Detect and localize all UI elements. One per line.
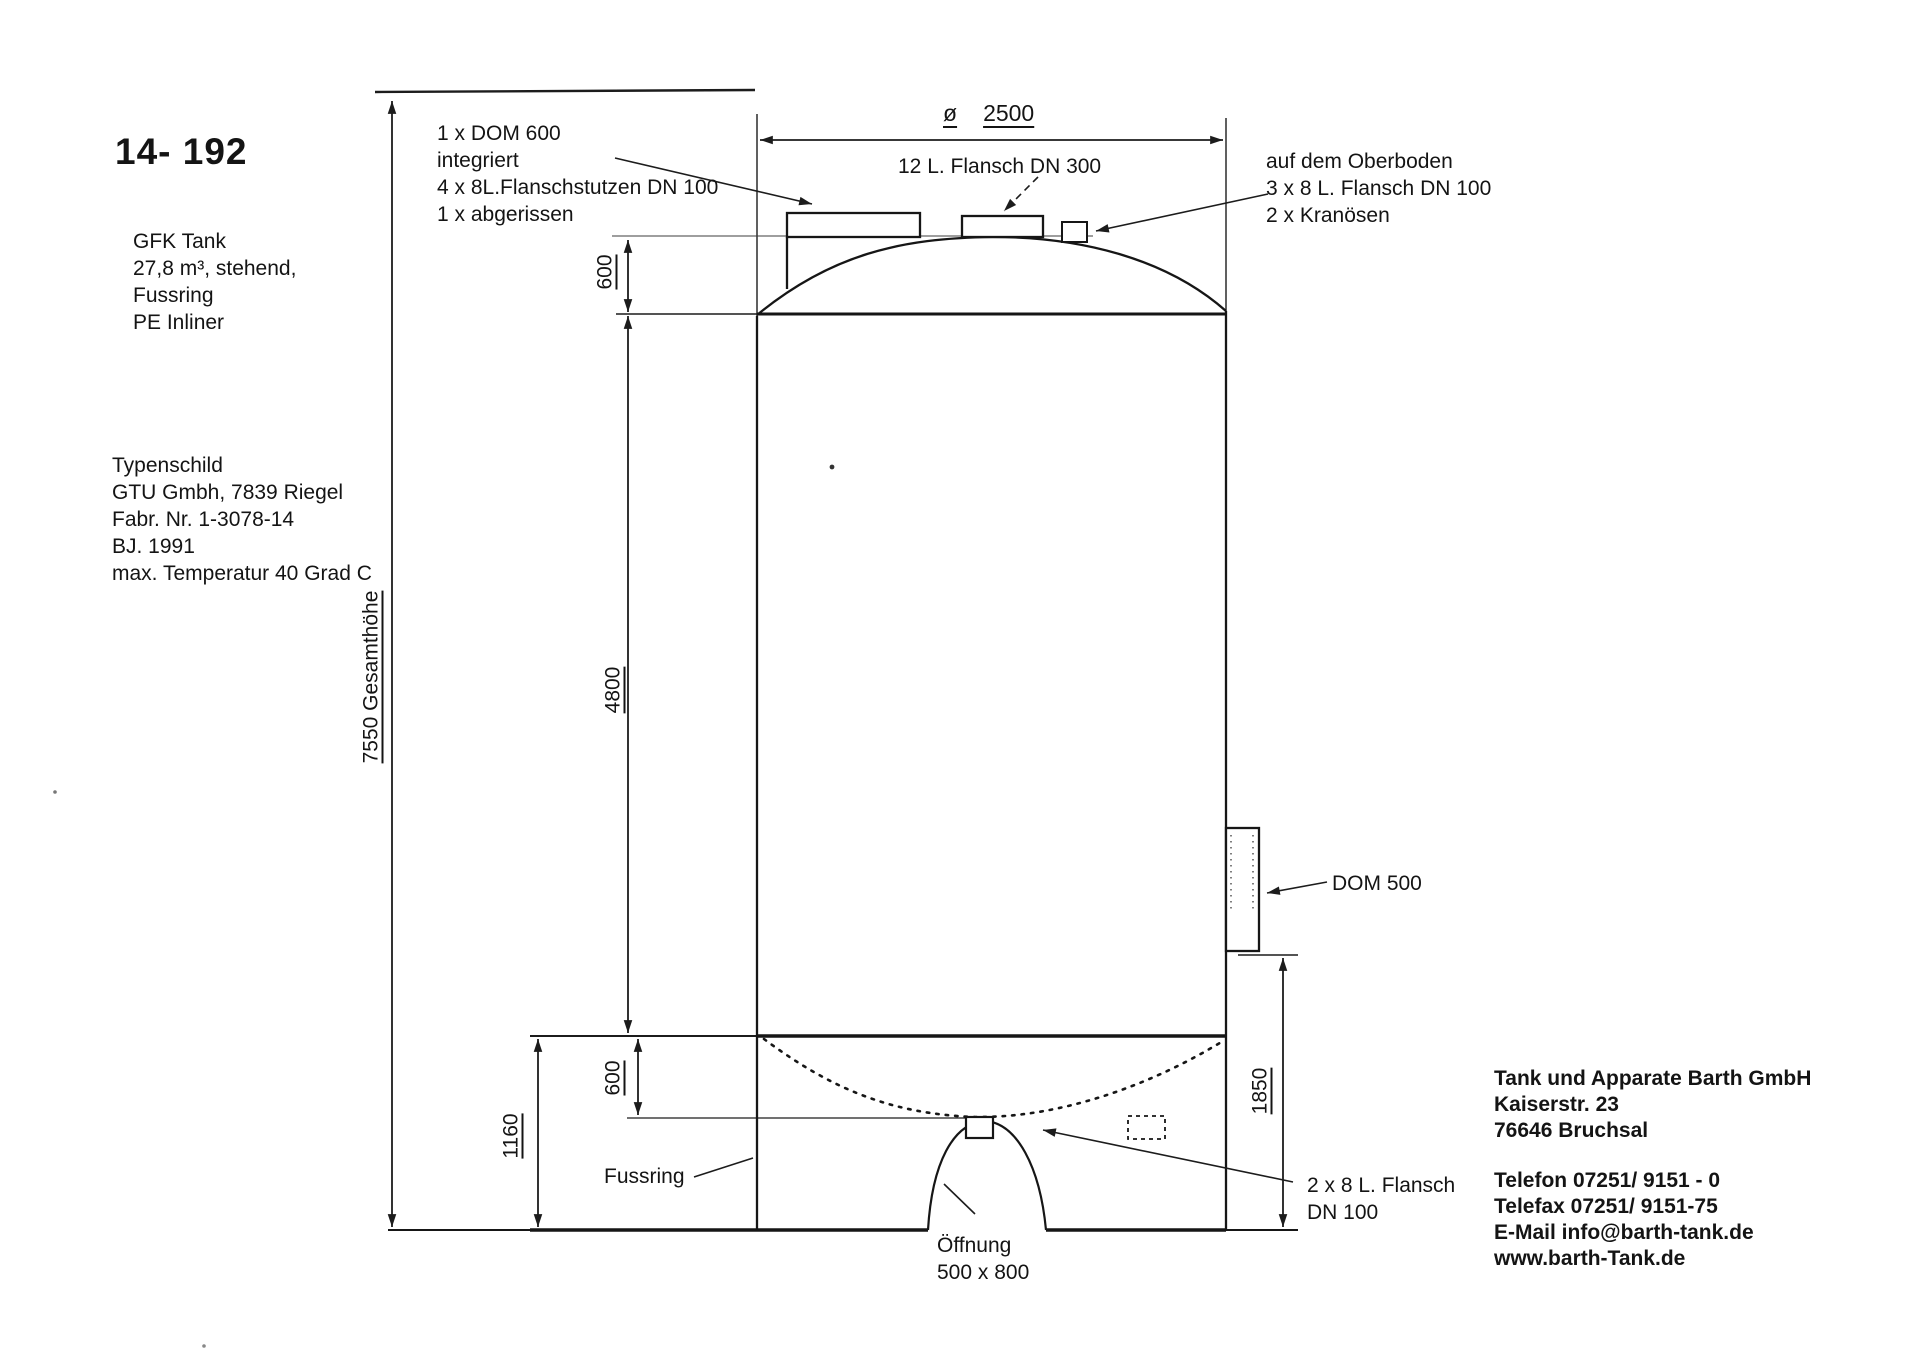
dom600-note: 1 x DOM 600 integriert 4 x 8L.Flanschstu… bbox=[437, 120, 718, 228]
drawing-number: 14- 192 bbox=[115, 138, 248, 165]
dim-label-dish-depth: 600 bbox=[600, 1060, 627, 1095]
leader-lines bbox=[615, 158, 1327, 1214]
company-name: Tank und Apparate Barth GmbH bbox=[1494, 1066, 1811, 1092]
flansch-dn300-label: 12 L. Flansch DN 300 bbox=[898, 153, 1101, 180]
dished-bottom-curve bbox=[764, 1039, 1223, 1117]
extension-lines bbox=[375, 90, 1298, 1118]
dimension-lines bbox=[392, 101, 1283, 1227]
oberboden-note: auf dem Oberboden 3 x 8 L. Flansch DN 10… bbox=[1266, 148, 1491, 229]
tank-outline bbox=[757, 237, 1226, 1230]
company-website: www.barth-Tank.de bbox=[1494, 1246, 1811, 1272]
dom600-note-line: 1 x DOM 600 bbox=[437, 120, 718, 147]
diameter-value: 2500 bbox=[983, 100, 1034, 126]
flansch-dn100-line: DN 100 bbox=[1307, 1199, 1455, 1226]
typenschild-block: Typenschild GTU Gmbh, 7839 Riegel Fabr. … bbox=[112, 452, 372, 587]
dom500-manway bbox=[1226, 828, 1259, 951]
dn300-flange bbox=[962, 216, 1043, 237]
flansch-dn100-note: 2 x 8 L. Flansch DN 100 bbox=[1307, 1172, 1455, 1226]
fussring-label: Fussring bbox=[604, 1163, 685, 1190]
company-street: Kaiserstr. 23 bbox=[1494, 1092, 1811, 1118]
dim-label-diameter: ø2500 bbox=[943, 100, 1034, 127]
company-fax: Telefax 07251/ 9151-75 bbox=[1494, 1194, 1811, 1220]
company-phone: Telefon 07251/ 9151 - 0 bbox=[1494, 1168, 1811, 1194]
dim-label-shell-height: 4800 bbox=[600, 667, 627, 714]
oeffnung-line: 500 x 800 bbox=[937, 1259, 1029, 1286]
dim-label-dome-height: 600 bbox=[592, 254, 619, 289]
dom600-flange bbox=[787, 213, 920, 237]
oberboden-note-line: 2 x Kranösen bbox=[1266, 202, 1491, 229]
typenschild-line: Typenschild bbox=[112, 452, 372, 479]
company-block: Tank und Apparate Barth GmbH Kaiserstr. … bbox=[1494, 1066, 1811, 1272]
company-city: 76646 Bruchsal bbox=[1494, 1118, 1811, 1144]
bottom-flanges bbox=[966, 1116, 1165, 1139]
tank-spec-line: 27,8 m³, stehend, bbox=[133, 255, 296, 282]
oberboden-note-line: 3 x 8 L. Flansch DN 100 bbox=[1266, 175, 1491, 202]
diameter-symbol: ø bbox=[943, 100, 957, 126]
typenschild-line: max. Temperatur 40 Grad C bbox=[112, 560, 372, 587]
oberboden-note-line: auf dem Oberboden bbox=[1266, 148, 1491, 175]
tank-spec-line: Fussring bbox=[133, 282, 296, 309]
dom600-note-line: 1 x abgerissen bbox=[437, 201, 718, 228]
dom600-note-line: integriert bbox=[437, 147, 718, 174]
typenschild-line: Fabr. Nr. 1-3078-14 bbox=[112, 506, 372, 533]
dom500-label: DOM 500 bbox=[1332, 870, 1422, 897]
dom600-note-line: 4 x 8L.Flanschstutzen DN 100 bbox=[437, 174, 718, 201]
oeffnung-note: Öffnung 500 x 800 bbox=[937, 1232, 1029, 1286]
dim-label-total-height: 7550 Gesamthöhe bbox=[358, 591, 385, 764]
scan-specks bbox=[53, 465, 834, 1348]
top-flanges bbox=[787, 213, 1087, 289]
typenschild-line: BJ. 1991 bbox=[112, 533, 372, 560]
dim-label-skirt-height: 1160 bbox=[498, 1113, 525, 1158]
small-flange bbox=[1062, 222, 1087, 242]
dome-top-curve bbox=[757, 237, 1226, 315]
tank-spec-line: GFK Tank bbox=[133, 228, 296, 255]
typenschild-line: GTU Gmbh, 7839 Riegel bbox=[112, 479, 372, 506]
technical-drawing-page: 14- 192 GFK Tank 27,8 m³, stehend, Fussr… bbox=[0, 0, 1920, 1358]
company-email: E-Mail info@barth-tank.de bbox=[1494, 1220, 1811, 1246]
dim-label-dom500-height: 1850 bbox=[1247, 1068, 1274, 1115]
tank-spec-block: GFK Tank 27,8 m³, stehend, Fussring PE I… bbox=[133, 228, 296, 336]
flansch-dn100-line: 2 x 8 L. Flansch bbox=[1307, 1172, 1455, 1199]
oeffnung-line: Öffnung bbox=[937, 1232, 1029, 1259]
tank-spec-line: PE Inliner bbox=[133, 309, 296, 336]
